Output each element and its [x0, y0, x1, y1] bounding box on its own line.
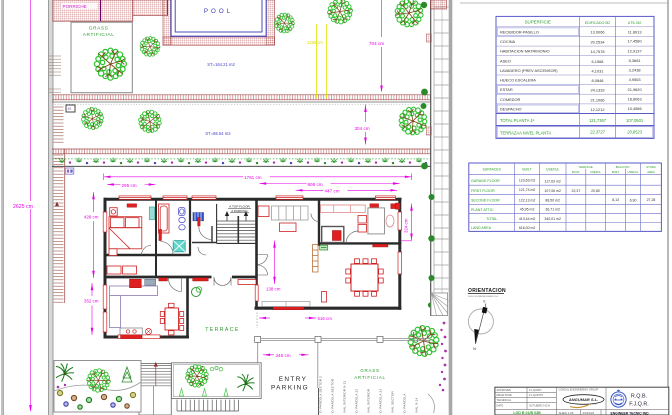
- svg-text:HABITACION MATRIMONIO: HABITACION MATRIMONIO: [500, 49, 550, 54]
- svg-text:PARKING: PARKING: [271, 385, 309, 392]
- svg-text:4,1031: 4,1031: [592, 68, 604, 73]
- svg-text:107,06 m2: 107,06 m2: [544, 189, 561, 193]
- svg-text:SUPERFICIE: SUPERFICIE: [525, 20, 551, 25]
- svg-text:20,80: 20,80: [591, 189, 600, 193]
- svg-text:21,1086: 21,1086: [590, 97, 604, 102]
- svg-text:17,4580: 17,4580: [628, 39, 643, 44]
- svg-text:R.Q.B.: R.Q.B.: [631, 393, 647, 399]
- svg-text:122,13 m2: 122,13 m2: [519, 199, 536, 203]
- svg-text:45,95 m2: 45,95 m2: [520, 208, 535, 212]
- svg-text:CONSUL ENGINEERING GROUP: CONSUL ENGINEERING GROUP: [559, 388, 599, 392]
- svg-text:C/ PARCELA 23: C/ PARCELA 23: [379, 389, 383, 413]
- svg-text:2625 cm: 2625 cm: [13, 204, 33, 210]
- svg-text:N: N: [473, 346, 476, 351]
- svg-text:SEGUN NORMATIVA URBANISTICA: SEGUN NORMATIVA URBANISTICA: [468, 295, 499, 298]
- svg-text:ST=86.54 m2: ST=86.54 m2: [205, 131, 231, 136]
- svg-text:DRAW DATE: DRAW DATE: [497, 393, 513, 397]
- svg-text:USEFUL: USEFUL: [546, 168, 559, 172]
- svg-text:SURFACES: SURFACES: [483, 168, 502, 172]
- svg-text:352 cm: 352 cm: [84, 299, 99, 304]
- svg-text:413,44 m2: 413,44 m2: [519, 217, 536, 221]
- svg-text:49: 49: [68, 107, 72, 111]
- svg-text:107,0501: 107,0501: [626, 118, 644, 123]
- svg-text:121,74 m2: 121,74 m2: [519, 188, 536, 192]
- svg-text:LAND AREA: LAND AREA: [471, 226, 492, 230]
- svg-text:BUILT: BUILT: [612, 170, 620, 174]
- svg-text:88,50 m2: 88,50 m2: [545, 199, 560, 203]
- svg-text:VIAL INTERIOR: VIAL INTERIOR: [367, 388, 371, 413]
- svg-text:RECIBIDOR-PASILLO: RECIBIDOR-PASILLO: [500, 29, 539, 34]
- svg-text:23/23/24: 23/23/24: [583, 411, 595, 415]
- svg-text:ARTIFICIAL: ARTIFICIAL: [83, 32, 115, 38]
- svg-text:808 cm: 808 cm: [308, 182, 323, 187]
- svg-text:10,4586: 10,4586: [628, 106, 642, 111]
- svg-text:123,63 m2: 123,63 m2: [519, 178, 536, 182]
- svg-text:ST=164.21 m2: ST=164.21 m2: [207, 62, 235, 67]
- svg-text:C/ PARCELA: C/ PARCELA: [403, 393, 407, 413]
- svg-text:USEFUL: USEFUL: [627, 170, 638, 174]
- svg-text:138 cm: 138 cm: [266, 287, 281, 292]
- svg-text:1761 cm: 1761 cm: [244, 175, 262, 180]
- svg-text:11.8913: 11.8913: [628, 29, 642, 34]
- svg-text:SHED 2 0F: SHED 2 0F: [559, 411, 574, 415]
- svg-text:340,01 m2: 340,01 m2: [544, 217, 561, 221]
- svg-text:4,9563: 4,9563: [629, 77, 641, 82]
- svg-text:36,71 m2: 36,71 m2: [545, 208, 560, 212]
- svg-text:295 cm: 295 cm: [122, 183, 137, 188]
- svg-text:FIRST FLOOR: FIRST FLOOR: [471, 189, 495, 193]
- svg-text:PORRICHE: PORRICHE: [63, 4, 87, 9]
- svg-text:GRASS: GRASS: [89, 26, 109, 32]
- svg-text:ENGINEER TECNIC IND: ENGINEER TECNIC IND: [610, 411, 649, 415]
- svg-text:BALCONY: BALCONY: [616, 165, 630, 169]
- svg-text:C/ PARCELA SECTOR 2: C/ PARCELA SECTOR 2: [319, 376, 323, 413]
- svg-text:C/ PARCELA SECTOR: C/ PARCELA SECTOR: [331, 378, 335, 413]
- svg-text:F.J.Q.R.: F.J.Q.R.: [629, 401, 648, 407]
- svg-text:AREA: AREA: [647, 170, 655, 174]
- svg-text:27,28: 27,28: [647, 198, 656, 202]
- svg-text:TERRACE: TERRACE: [205, 327, 240, 333]
- svg-text:346 cm: 346 cm: [276, 353, 291, 358]
- svg-text:8,0848: 8,0848: [592, 78, 604, 83]
- svg-text:S.L.U.: S.L.U.: [592, 404, 597, 406]
- svg-text:ORIENTACION: ORIENTACION: [468, 288, 506, 294]
- svg-text:F.J.QUIRO: F.J.QUIRO: [529, 388, 542, 392]
- svg-text:304 cm: 304 cm: [355, 126, 370, 131]
- svg-text:BUILT: BUILT: [572, 170, 580, 174]
- svg-text:LAVADERO (PREV ASCENSOR): LAVADERO (PREV ASCENSOR): [500, 68, 558, 73]
- svg-text:428 cm: 428 cm: [84, 215, 99, 220]
- svg-text:PLANT ATTIC: PLANT ATTIC: [471, 208, 494, 212]
- svg-text:TERRAZAA NIVEL PLANTA: TERRAZAA NIVEL PLANTA: [500, 130, 551, 135]
- svg-text:6,1568: 6,1568: [592, 59, 604, 64]
- svg-text:12,1212: 12,1212: [590, 107, 604, 112]
- svg-text:20.2534: 20.2534: [590, 40, 605, 45]
- svg-text:TECHNICAL: TECHNICAL: [497, 398, 512, 402]
- svg-text:TOTAL: TOTAL: [486, 217, 497, 221]
- svg-text:ESTAR: ESTAR: [500, 87, 513, 92]
- svg-text:6,90: 6,90: [630, 199, 637, 203]
- svg-text:5,3681: 5,3681: [629, 58, 641, 63]
- svg-text:VIAL N 14: VIAL N 14: [415, 398, 419, 413]
- svg-text:COMEDOR: COMEDOR: [500, 97, 521, 102]
- svg-text:HUECO ESCALERA: HUECO ESCALERA: [500, 78, 536, 83]
- svg-text:8,13: 8,13: [612, 198, 619, 202]
- svg-text:GARAGE FLOOR: GARAGE FLOOR: [471, 179, 500, 183]
- svg-text:616,00 m2: 616,00 m2: [519, 226, 536, 230]
- svg-text:14,7578: 14,7578: [590, 49, 604, 54]
- svg-text:24,1333: 24,1333: [590, 88, 604, 93]
- svg-text:ENTRY: ENTRY: [279, 376, 308, 383]
- svg-text:APPROVED: APPROVED: [497, 388, 512, 392]
- svg-text:22,37: 22,37: [572, 189, 581, 193]
- svg-text:DESPACHO: DESPACHO: [500, 107, 522, 112]
- svg-text:324 cm: 324 cm: [404, 218, 409, 233]
- svg-text:447 cm: 447 cm: [325, 189, 340, 194]
- svg-text:LOD B 01/B 03B: LOD B 01/B 03B: [513, 411, 541, 415]
- svg-text:1190 cm: 1190 cm: [307, 40, 323, 45]
- svg-text:VIAL INTERIOR N 12: VIAL INTERIOR N 12: [343, 381, 347, 413]
- svg-text:117,63 m2: 117,63 m2: [545, 179, 561, 183]
- svg-text:GRASS: GRASS: [360, 368, 379, 373]
- svg-text:BUILT: BUILT: [522, 168, 531, 172]
- svg-text:3,2438: 3,2438: [629, 68, 641, 73]
- svg-text:POOL: POOL: [204, 8, 233, 15]
- svg-text:22,3727: 22,3727: [589, 130, 606, 135]
- svg-text:TERRACE: TERRACE: [578, 165, 592, 169]
- svg-text:21,9620: 21,9620: [628, 87, 643, 92]
- svg-text:TOTAL PLANTA 1ª: TOTAL PLANTA 1ª: [500, 118, 535, 123]
- svg-text:13.0066: 13.0066: [590, 29, 604, 34]
- svg-text:A PARKING: A PARKING: [231, 209, 248, 213]
- svg-text:18,8063: 18,8063: [628, 97, 642, 102]
- svg-text:ANGUMAR S.L.: ANGUMAR S.L.: [568, 397, 598, 402]
- svg-text:STORA: STORA: [646, 165, 656, 169]
- svg-text:VIAL SECTOR: VIAL SECTOR: [391, 390, 395, 413]
- svg-text:12,9137: 12,9137: [628, 48, 642, 53]
- svg-text:EDIFICADO M2: EDIFICADO M2: [585, 21, 611, 25]
- svg-text:704 cm: 704 cm: [369, 41, 384, 46]
- svg-text:USEFUL: USEFUL: [590, 170, 601, 174]
- svg-text:ASEO: ASEO: [500, 58, 511, 63]
- svg-text:20,8523: 20,8523: [626, 130, 643, 135]
- svg-text:C/ PARCELA 22: C/ PARCELA 22: [355, 389, 359, 413]
- svg-text:SECOND FLOOR: SECOND FLOOR: [471, 199, 500, 203]
- svg-text:ARTIFICIAL: ARTIFICIAL: [354, 375, 386, 380]
- svg-text:F.J.QUINTO: F.J.QUINTO: [529, 393, 543, 397]
- svg-text:516 cm: 516 cm: [318, 316, 333, 321]
- svg-text:OCTUBER 2 02 N: OCTUBER 2 02 N: [529, 404, 550, 408]
- svg-text:DATE: DATE: [497, 404, 504, 408]
- svg-text:UTIL M2: UTIL M2: [628, 21, 642, 25]
- svg-text:COCINA: COCINA: [500, 39, 516, 44]
- svg-text:121,7367: 121,7367: [589, 118, 607, 123]
